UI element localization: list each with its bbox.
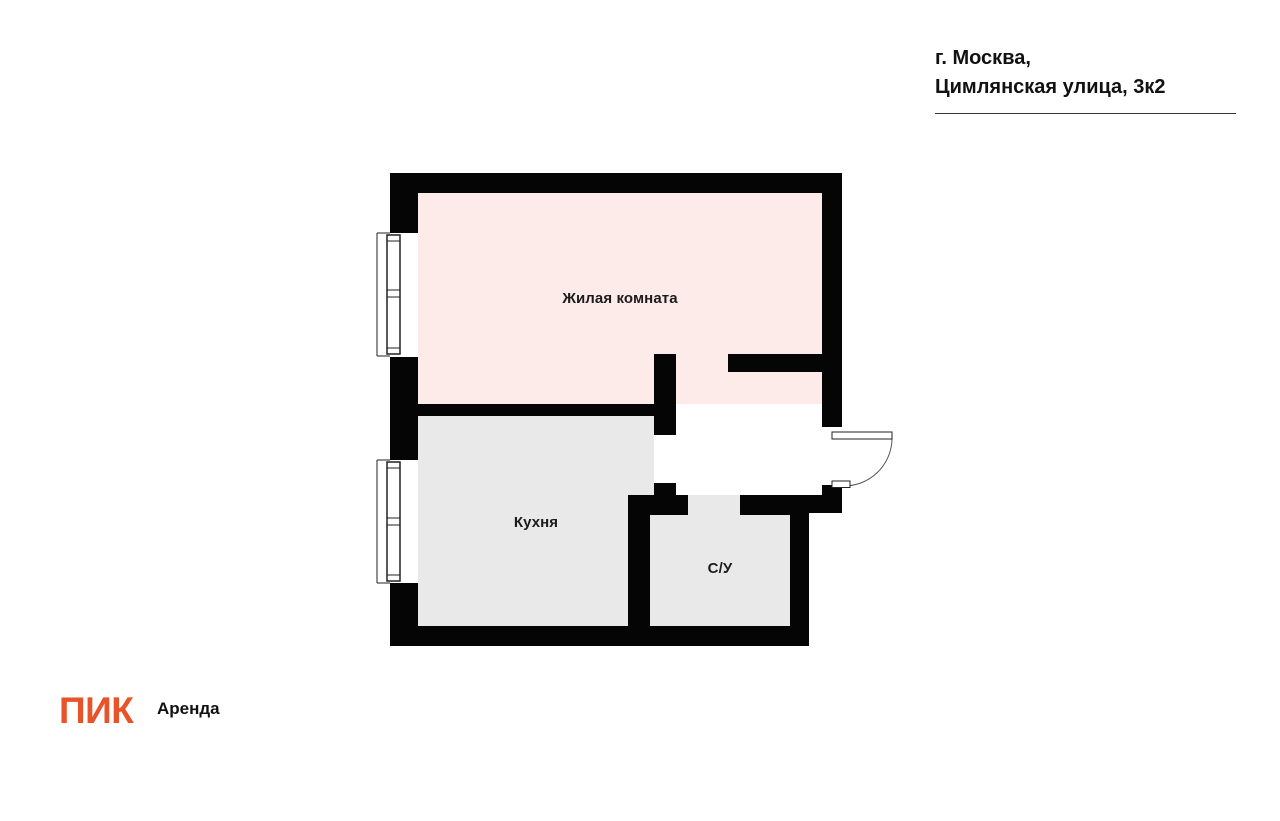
room-living: Жилая комната [418,193,822,404]
pik-logo: ПИК [59,691,133,731]
room-living-label: Жилая комната [562,290,677,307]
wall-right-upper [822,173,842,427]
floor-plan-page: З С Ю В г. Москва, Цимлянская улица, 3к2… [0,0,1280,821]
entrance-door-icon [820,425,900,495]
window-kitchen-icon [374,458,404,586]
room-hallway [0,0,168,141]
window-living-icon [374,231,404,359]
room-bathroom-label: С/У [708,560,733,577]
wall-hall-left [654,354,676,435]
room-kitchen: Кухня [418,416,654,628]
pik-logo-suffix: Аренда [157,699,220,719]
wall-top [390,173,842,193]
wall-living-kitchen [418,404,654,416]
wall-bottom [390,626,809,646]
wall-right-connector [790,495,842,513]
wall-bathroom-top-left [628,495,688,515]
room-kitchen-label: Кухня [514,514,558,531]
wall-hall-top-right [728,354,822,372]
wall-left-upper [390,173,418,233]
wall-bathroom-left [628,495,650,646]
apartment-plan: Жилая комната Кухня С/У [0,0,1280,821]
wall-left-middle [390,357,418,460]
wall-bathroom-top-right [740,495,790,515]
wall-bathroom-right [790,513,809,646]
